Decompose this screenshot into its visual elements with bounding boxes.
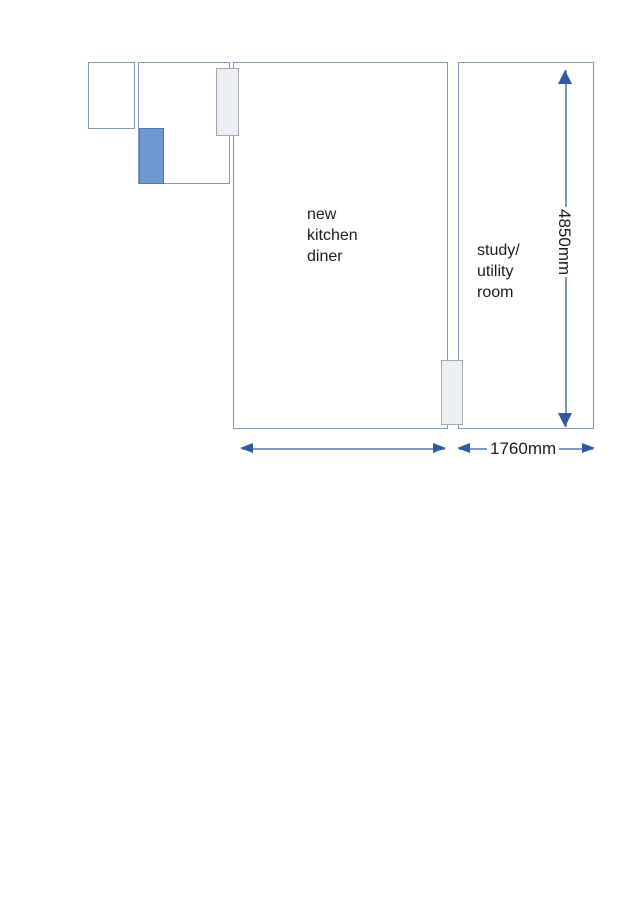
height-dimension-label: 4850mm	[554, 207, 574, 277]
arrow-left-icon	[240, 443, 253, 453]
door-opening-top	[216, 68, 239, 136]
blue-cabinet-rect	[139, 128, 164, 184]
kitchen-width-dimension-line	[242, 448, 445, 450]
arrow-down-icon	[558, 413, 572, 427]
arrow-right-icon	[433, 443, 446, 453]
arrow-up-icon	[558, 70, 572, 84]
floorplan-canvas: new kitchen diner study/ utility room 48…	[0, 0, 636, 900]
arrow-left-icon	[457, 443, 470, 453]
kitchen-diner-label: new kitchen diner	[307, 204, 358, 267]
small-room-outline	[88, 62, 135, 129]
study-utility-label: study/ utility room	[477, 240, 520, 303]
arrow-right-icon	[582, 443, 595, 453]
study-width-dimension-label: 1760mm	[487, 439, 559, 459]
door-opening-bottom	[441, 360, 463, 425]
